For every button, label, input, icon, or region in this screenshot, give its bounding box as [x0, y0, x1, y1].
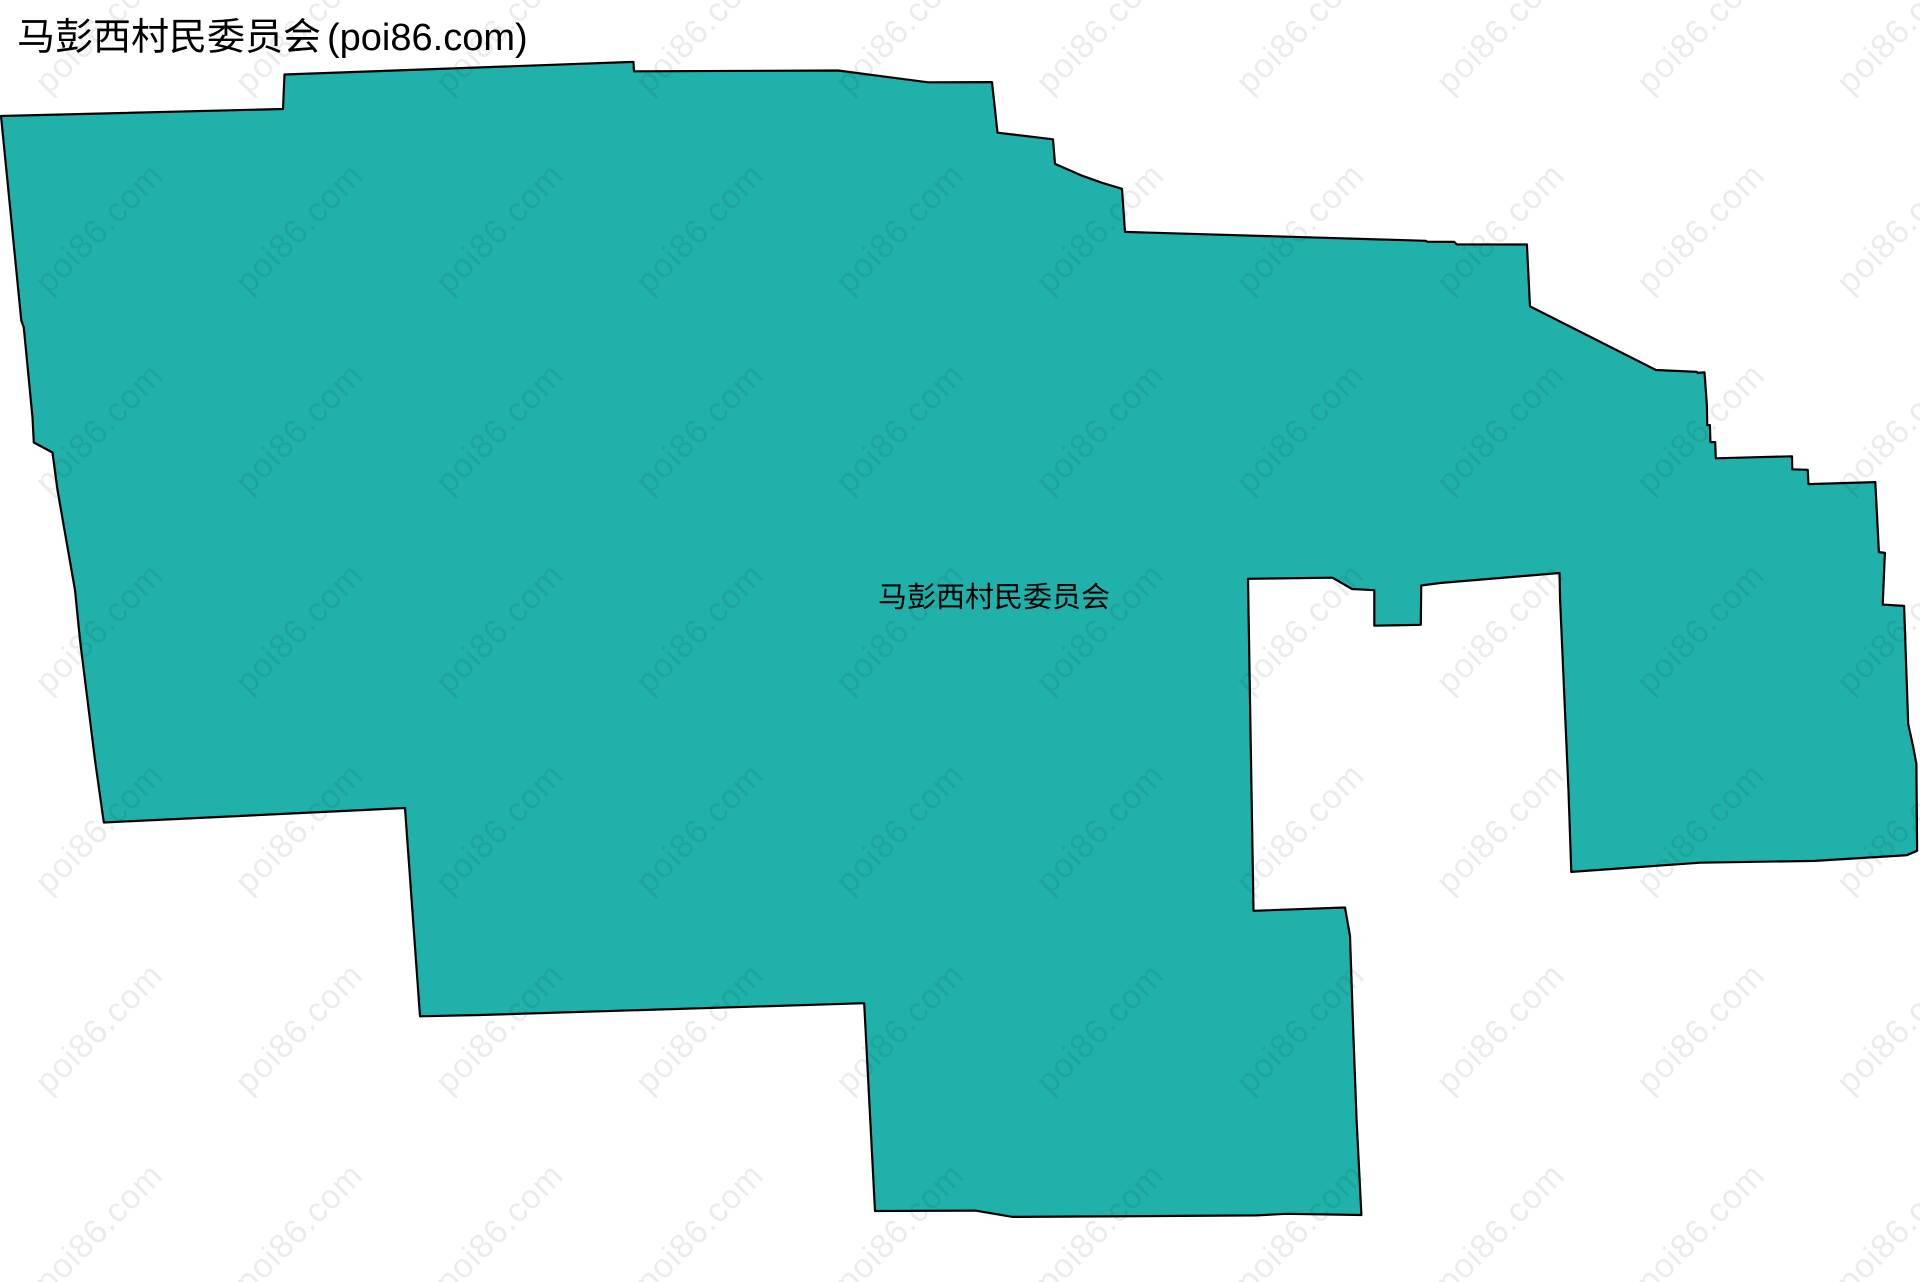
- svg-text:poi86.com: poi86.com: [428, 1156, 571, 1282]
- svg-text:poi86.com: poi86.com: [27, 956, 170, 1101]
- svg-text:poi86.com: poi86.com: [228, 956, 371, 1101]
- svg-text:poi86.com: poi86.com: [1028, 0, 1171, 101]
- svg-text:poi86.com: poi86.com: [1429, 0, 1572, 101]
- svg-text:poi86.com: poi86.com: [1429, 1156, 1572, 1282]
- svg-text:poi86.com: poi86.com: [1829, 156, 1920, 301]
- svg-text:poi86.com: poi86.com: [27, 1156, 170, 1282]
- svg-text:poi86.com: poi86.com: [1629, 0, 1772, 101]
- svg-text:poi86.com: poi86.com: [1629, 956, 1772, 1101]
- svg-text:poi86.com: poi86.com: [1629, 156, 1772, 301]
- svg-text:poi86.com: poi86.com: [228, 1156, 371, 1282]
- svg-text:poi86.com: poi86.com: [1629, 1156, 1772, 1282]
- svg-text:poi86.com: poi86.com: [1229, 0, 1372, 101]
- svg-text:poi86.com: poi86.com: [1829, 956, 1920, 1101]
- svg-text:poi86.com: poi86.com: [1829, 1156, 1920, 1282]
- svg-text:poi86.com: poi86.com: [1429, 756, 1572, 901]
- svg-text:poi86.com: poi86.com: [1429, 956, 1572, 1101]
- svg-text:poi86.com: poi86.com: [628, 1156, 771, 1282]
- svg-text:poi86.com: poi86.com: [1829, 0, 1920, 101]
- svg-text:poi86.com: poi86.com: [1829, 356, 1920, 501]
